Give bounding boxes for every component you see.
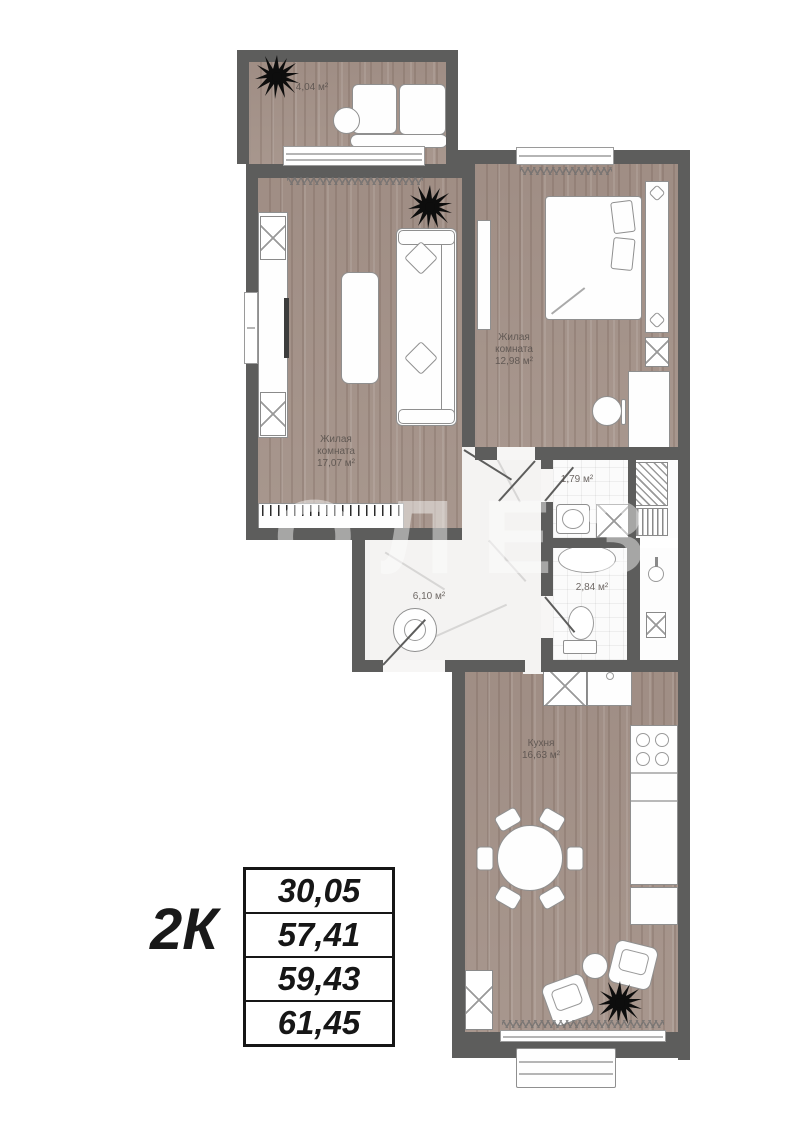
wall bbox=[352, 660, 383, 672]
wc-sink-basin bbox=[562, 509, 584, 529]
wall bbox=[628, 460, 636, 538]
tv-stand-cabinet bbox=[260, 392, 286, 436]
door-gap bbox=[497, 447, 535, 460]
kitchen-cabinet bbox=[465, 970, 493, 1030]
armchair-seat bbox=[617, 948, 649, 976]
vent-shaft bbox=[634, 462, 668, 506]
wall bbox=[535, 447, 678, 460]
wall bbox=[541, 502, 553, 596]
piano-keys bbox=[262, 505, 400, 516]
wall bbox=[445, 660, 525, 672]
riser-shaft-floor bbox=[640, 548, 678, 660]
balcony-door-window bbox=[283, 146, 425, 166]
wall bbox=[352, 540, 365, 672]
wall bbox=[553, 660, 678, 672]
bath-sink bbox=[558, 545, 616, 573]
wall bbox=[237, 50, 249, 164]
kitchen-counter bbox=[630, 725, 678, 885]
kitchen-area: 16,63 м² bbox=[522, 750, 560, 762]
office-chair bbox=[592, 396, 622, 426]
fridge bbox=[630, 887, 678, 925]
window-frame-line bbox=[519, 155, 611, 157]
wardrobe bbox=[645, 181, 669, 333]
toilet-bowl bbox=[568, 606, 594, 640]
area-value-row: 57,41 bbox=[246, 912, 392, 956]
duct-box bbox=[596, 504, 632, 538]
stove-burner bbox=[655, 752, 669, 766]
bedroom-area: 12,98 м² bbox=[485, 356, 543, 368]
bedroom-label: Жилая комната 12,98 м² bbox=[485, 332, 543, 368]
tv-icon bbox=[284, 298, 289, 358]
dining-chair bbox=[477, 847, 494, 871]
wall bbox=[446, 50, 458, 164]
bed-pillow bbox=[610, 237, 635, 271]
plant-icon bbox=[406, 183, 454, 236]
wc-area: 1,79 м² bbox=[561, 474, 593, 485]
hall-area-label: 6,10 м² bbox=[413, 591, 445, 603]
wall bbox=[541, 538, 640, 548]
door-gap bbox=[383, 660, 445, 672]
apartment-type-label: 2К bbox=[150, 896, 218, 963]
wall bbox=[452, 672, 465, 1032]
floor-plan: 4,04 м² Жилая комната 17,07 м² Жилая ком… bbox=[0, 0, 800, 1129]
bedroom-cabinet bbox=[645, 337, 669, 367]
sofa-backrest bbox=[441, 232, 455, 422]
water-riser-stem bbox=[655, 557, 658, 567]
toilet-tank bbox=[563, 640, 597, 654]
living-room-area: 17,07 м² bbox=[307, 458, 365, 470]
window-frame-line bbox=[286, 153, 422, 155]
stove-burner bbox=[655, 733, 669, 747]
bedroom-name: Жилая комната bbox=[485, 332, 543, 356]
balcony-bench-cushion bbox=[399, 84, 446, 135]
kitchen-label: Кухня 16,63 м² bbox=[522, 738, 560, 762]
riser-box bbox=[646, 612, 666, 638]
bathroom-area-label: 2,84 м² bbox=[576, 582, 608, 594]
kitchen-balcony-railing bbox=[516, 1048, 616, 1088]
railing-line bbox=[519, 1073, 613, 1075]
vent-grill bbox=[636, 508, 668, 536]
sofa-armrest bbox=[398, 409, 455, 424]
wc-area-label: 1,79 м² bbox=[561, 474, 593, 486]
wall bbox=[678, 150, 690, 1060]
bedroom-window bbox=[516, 147, 614, 165]
plant-icon bbox=[253, 53, 301, 106]
railing-line bbox=[519, 1061, 613, 1063]
desk bbox=[628, 371, 670, 455]
counter-divider bbox=[631, 800, 677, 802]
wall bbox=[462, 164, 475, 447]
radiator bbox=[502, 1020, 664, 1028]
kitchen-window bbox=[500, 1030, 666, 1042]
kitchen-name: Кухня bbox=[522, 738, 560, 750]
kitchen-faucet bbox=[606, 672, 614, 680]
bedroom-mirror bbox=[477, 220, 491, 330]
balcony-bench-cushion bbox=[352, 84, 397, 134]
balcony-area-label: 4,04 м² bbox=[296, 82, 328, 94]
hall-floor-doorgap bbox=[462, 447, 475, 540]
wall bbox=[246, 528, 462, 540]
wall bbox=[541, 447, 553, 469]
hall-area: 6,10 м² bbox=[413, 591, 445, 602]
kitchen-washer bbox=[543, 666, 587, 706]
bed-pillow bbox=[610, 200, 636, 234]
area-value-row: 30,05 bbox=[246, 870, 392, 912]
wall bbox=[541, 638, 553, 672]
area-summary-table: 30,05 57,41 59,43 61,45 bbox=[243, 867, 395, 1047]
radiator bbox=[520, 167, 612, 175]
dining-table bbox=[497, 825, 563, 891]
balcony-round-table bbox=[333, 107, 360, 134]
living-side-window bbox=[244, 292, 258, 364]
counter-divider bbox=[631, 772, 677, 774]
office-chair-back bbox=[621, 399, 626, 425]
area-value-row: 61,45 bbox=[246, 1000, 392, 1044]
living-room-name: Жилая комната bbox=[307, 434, 365, 458]
wall bbox=[627, 538, 640, 660]
water-riser bbox=[648, 566, 664, 582]
window-frame-line bbox=[247, 327, 255, 329]
window-frame-line bbox=[286, 159, 422, 161]
coffee-table bbox=[341, 272, 379, 384]
stove-burner bbox=[636, 752, 650, 766]
window-frame-line bbox=[503, 1036, 663, 1038]
bathroom-area: 2,84 м² bbox=[576, 582, 608, 593]
stove-burner bbox=[636, 733, 650, 747]
tv-stand-cabinet bbox=[260, 216, 286, 260]
balcony-area: 4,04 м² bbox=[296, 82, 328, 93]
radiator bbox=[287, 177, 423, 185]
area-value-row: 59,43 bbox=[246, 956, 392, 1000]
wall bbox=[246, 164, 475, 178]
armchair-seat bbox=[550, 982, 584, 1012]
living-room-label: Жилая комната 17,07 м² bbox=[307, 434, 365, 470]
side-table bbox=[582, 953, 608, 979]
dining-chair bbox=[567, 847, 584, 871]
hall-floor-lower bbox=[365, 540, 541, 660]
